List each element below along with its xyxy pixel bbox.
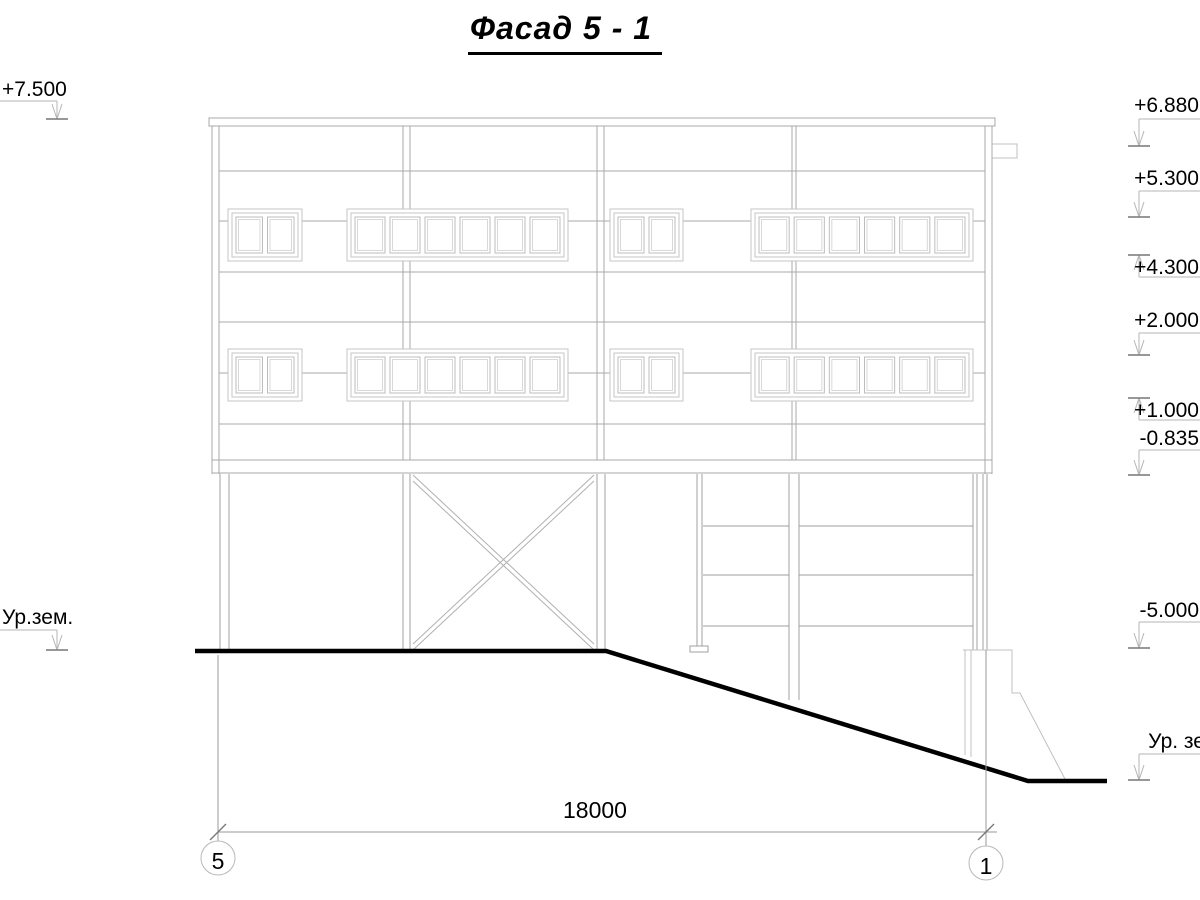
marker-ground-right	[1128, 754, 1200, 780]
right-foundation	[963, 650, 1065, 779]
ground-level-label-left: Ур.зем.	[2, 607, 73, 628]
marker-ground-left	[0, 630, 68, 650]
dimension-label: 18000	[540, 797, 650, 824]
building-facade	[209, 118, 1017, 474]
elevation-label-2000: +2.000	[1134, 310, 1199, 331]
elevation-label-5000: -5.000	[1139, 600, 1199, 621]
elevation-label-7500: +7.500	[2, 79, 67, 100]
window	[347, 349, 568, 401]
window	[610, 349, 683, 401]
window	[610, 209, 683, 261]
window-layer	[228, 209, 973, 401]
elevation-label-0835: -0.835	[1139, 428, 1199, 449]
elevation-linework	[0, 0, 1200, 900]
ground-line	[195, 651, 1107, 781]
marker-2000	[1128, 333, 1200, 355]
ground-level-label-right: Ур. зе	[1148, 731, 1200, 752]
marker-5300	[1128, 191, 1200, 217]
window	[228, 209, 302, 261]
cross-bracing	[413, 475, 594, 650]
window	[751, 349, 973, 401]
marker-0835	[1128, 450, 1200, 475]
window	[228, 349, 302, 401]
marker-5000	[1128, 622, 1200, 648]
elevation-label-4300: +4.300	[1134, 257, 1199, 278]
elevation-label-1000: +1.000	[1134, 400, 1199, 421]
facade-drawing-sheet: Фасад 5 - 1 +7.500 Ур.зем. +6.880 +5.300…	[0, 0, 1200, 900]
axis-label-1: 1	[970, 853, 1002, 880]
stair-landings	[703, 526, 973, 626]
parapet	[209, 118, 995, 126]
scupper-pipe	[992, 144, 1017, 158]
axis-label-5: 5	[202, 848, 234, 875]
marker-7500	[0, 101, 68, 119]
marker-6880	[1128, 119, 1200, 146]
drawing-title: Фасад 5 - 1	[468, 10, 662, 55]
window	[347, 209, 568, 261]
elevation-label-5300: +5.300	[1134, 168, 1199, 189]
elevation-marker-layer	[0, 101, 1200, 780]
post-base	[690, 646, 708, 652]
window	[751, 209, 973, 261]
elevation-label-6880: +6.880	[1134, 95, 1199, 116]
columns	[220, 474, 987, 757]
